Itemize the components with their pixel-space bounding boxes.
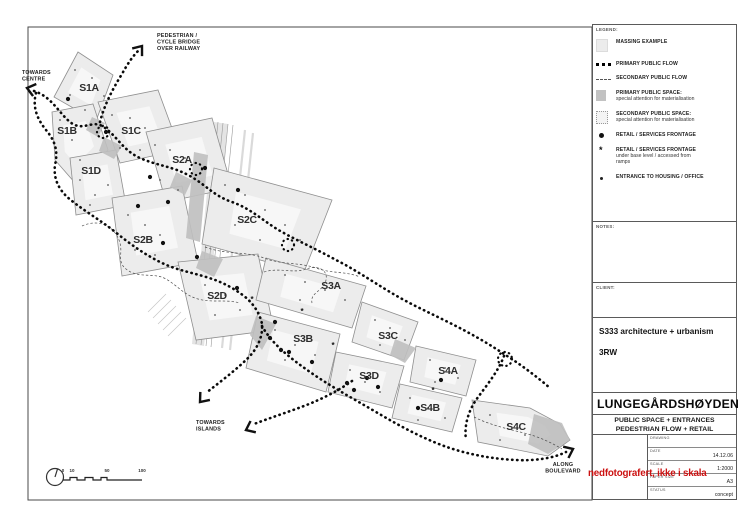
legend-item-label: SECONDARY PUBLIC FLOW	[616, 75, 687, 81]
field-label: SCALE	[650, 462, 663, 466]
entrance-dot	[499, 439, 501, 441]
secondary-flow-line-icon	[596, 75, 611, 81]
legend-item-label: PRIMARY PUBLIC FLOW	[616, 61, 678, 67]
flow-arrowhead	[244, 422, 255, 435]
slope-hatch-line	[148, 294, 166, 312]
flow-arrowhead	[196, 393, 209, 405]
entrance-dot	[434, 381, 436, 383]
primary-flow-line-icon	[596, 61, 611, 67]
scale-bar	[63, 478, 142, 481]
retail-frontage-dot	[203, 166, 207, 170]
entrance-dot	[91, 77, 93, 79]
entrance-dot	[314, 354, 316, 356]
entrance-dot	[169, 149, 171, 151]
retail-frontage-dot	[195, 255, 199, 259]
legend-item-label: MASSING EXAMPLE	[616, 39, 667, 45]
entrance-dot	[154, 254, 156, 256]
entrance-dot	[204, 284, 206, 286]
legend-item-label: RETAIL / SERVICES FRONTAGE	[616, 132, 696, 138]
titleblock-fields: DRAWINGDATE14.12.06SCALE1:2000PAPER SIZE…	[592, 434, 737, 500]
entrance-dot	[284, 359, 286, 361]
retail-frontage-dot	[136, 204, 140, 208]
scale-bar-label: 10	[69, 468, 75, 473]
parcel-label-s2a: S2A	[172, 154, 192, 166]
parcel-label-s3c: S3C	[378, 330, 398, 342]
entrance-dot	[409, 397, 411, 399]
entrance-dot	[154, 144, 156, 146]
retail-frontage-dot	[104, 130, 108, 134]
entrance-dot	[79, 179, 81, 181]
entrance-dot	[389, 327, 391, 329]
entrance-dot	[144, 127, 146, 129]
scale-bar-label: 100	[138, 468, 146, 473]
titleblock-field-rows: DRAWINGDATE14.12.06SCALE1:2000PAPER SIZE…	[648, 435, 736, 499]
entrance-dot	[304, 281, 306, 283]
entrance-dot	[159, 234, 161, 236]
entrance-dot	[107, 184, 109, 186]
entrance-dot	[234, 224, 236, 226]
entrance-dot	[429, 359, 431, 361]
retail-frontage-dot	[166, 200, 170, 204]
legend-item: PRIMARY PUBLIC FLOW	[596, 61, 733, 67]
subtitle-line-1: PUBLIC SPACE + ENTRANCES	[593, 417, 736, 426]
field-value: concept	[715, 492, 733, 498]
entrance-dot	[127, 214, 129, 216]
entrance-dot	[89, 204, 91, 206]
slope-hatch-line	[158, 306, 176, 324]
retail-frontage-dot	[66, 97, 70, 101]
entrance-dot	[214, 314, 216, 316]
entrance-dot	[111, 114, 113, 116]
firm-name-s333: S333 architecture + urbanism	[599, 327, 730, 336]
client-box: CLIENT:	[592, 282, 737, 318]
entrance-dot	[94, 194, 96, 196]
entrance-dot	[417, 419, 419, 421]
flow-arrowhead	[564, 444, 575, 457]
parcel-label-s4a: S4A	[438, 365, 458, 377]
entrance-dot	[349, 369, 351, 371]
parcel-label-s1b: S1B	[57, 125, 77, 137]
titleblock-field-date: DATE14.12.06	[648, 448, 736, 461]
parcel-label-s1d: S1D	[81, 165, 101, 177]
retail-frontage-dot	[236, 188, 240, 192]
legend-item: SECONDARY PUBLIC FLOW	[596, 75, 733, 81]
field-label: DRAWING	[650, 436, 670, 440]
slope-hatch-line	[153, 300, 171, 318]
entrance-dot	[144, 224, 146, 226]
entrance-dot	[103, 95, 105, 97]
legend-item-label: ENTRANCE TO HOUSING / OFFICE	[616, 174, 704, 180]
entrance-dot	[284, 274, 286, 276]
entrance-dot	[129, 117, 131, 119]
massing-square-icon	[596, 39, 611, 52]
towards-centre-label: TOWARDSCENTRE	[22, 70, 51, 83]
retail-frontage-dot	[310, 360, 314, 364]
entrance-dot	[374, 319, 376, 321]
entrance-dot	[119, 147, 121, 149]
legend-item: ENTRANCE TO HOUSING / OFFICE	[596, 174, 733, 180]
entrance-dot	[69, 94, 71, 96]
retail-frontage-dot	[161, 241, 165, 245]
retail-frontage-dot	[345, 381, 349, 385]
entrance-dot	[274, 329, 276, 331]
entrance-dot	[524, 434, 526, 436]
parcel-label-s3d: S3D	[359, 370, 379, 382]
legend-item: RETAIL / SERVICES FRONTAGE	[596, 132, 733, 138]
secondary-space-square-icon	[596, 111, 611, 124]
retail-frontage-dot	[287, 350, 291, 354]
entrance-dot	[259, 239, 261, 241]
entrance-dot	[177, 189, 179, 191]
slope-hatch-line	[168, 318, 186, 336]
retail-dot-icon	[596, 132, 611, 138]
scale-bar-label: 0	[62, 468, 65, 473]
entrance-dot	[379, 344, 381, 346]
legend-item: *RETAIL / SERVICES FRONTAGEunder base le…	[596, 147, 733, 166]
retail-asterisk-icon: *	[596, 147, 611, 153]
project-title: LUNGEGÅRDSHØYDEN	[593, 397, 739, 411]
subtitle-line-2: PEDESTRIAN FLOW + RETAIL	[593, 426, 736, 435]
legend-heading: LEGEND:	[593, 25, 736, 32]
flow-arrowhead	[26, 83, 36, 95]
entrance-dot	[457, 377, 459, 379]
notes-box: NOTES:	[592, 221, 737, 283]
entrance-dot	[134, 249, 136, 251]
entrance-dot	[379, 391, 381, 393]
project-title-box: LUNGEGÅRDSHØYDEN	[592, 392, 737, 415]
flow-arrowhead	[133, 43, 146, 55]
legend-item-label: PRIMARY PUBLIC SPACE:special attention f…	[616, 90, 694, 102]
legend-item-label: SECONDARY PUBLIC SPACE:special attention…	[616, 111, 694, 123]
scale-bar-label: 50	[104, 468, 110, 473]
legend-item: SECONDARY PUBLIC SPACE:special attention…	[596, 111, 733, 124]
entrance-dot	[239, 309, 241, 311]
retail-frontage-dot	[273, 320, 277, 324]
retail-frontage-dot	[439, 378, 443, 382]
north-needle	[55, 469, 58, 477]
drawing-subtitle-box: PUBLIC SPACE + ENTRANCES PEDESTRIAN FLOW…	[592, 414, 737, 435]
field-label: DATE	[650, 449, 661, 453]
parcel-label-s2c: S2C	[237, 214, 257, 226]
primary-space-square-icon	[596, 90, 611, 101]
entrance-dot	[224, 184, 226, 186]
entrance-dot-icon	[596, 174, 611, 180]
entrance-dot	[264, 209, 266, 211]
retail-frontage-dot	[279, 348, 283, 352]
firm-name-3rw: 3RW	[599, 348, 730, 357]
entrance-dot	[159, 179, 161, 181]
retail-frontage-dot	[376, 385, 380, 389]
retail-frontage-dot	[352, 388, 356, 392]
parcel-label-s3a: S3A	[321, 280, 341, 292]
entrance-dot	[59, 119, 61, 121]
entrance-dot	[79, 159, 81, 161]
entrance-dot	[299, 239, 301, 241]
parcel-label-s4b: S4B	[420, 402, 440, 414]
entrance-dot	[489, 414, 491, 416]
entrance-dot	[139, 149, 141, 151]
entrance-dot	[84, 109, 86, 111]
primary-public-space-patch	[390, 339, 416, 363]
parcel-label-s2d: S2D	[207, 290, 227, 302]
title-block-sidebar: LEGEND: MASSING EXAMPLEPRIMARY PUBLIC FL…	[592, 25, 737, 500]
titleblock-field-status: STATUSconcept	[648, 487, 736, 499]
firm-box: S333 architecture + urbanism 3RW	[592, 317, 737, 393]
slope-hatch-line	[163, 312, 181, 330]
notes-heading: NOTES:	[593, 222, 736, 229]
field-value: A3	[727, 479, 733, 485]
parcel-label-s1c: S1C	[121, 125, 141, 137]
retail-frontage-dot	[268, 336, 272, 340]
parcel-label-s3b: S3B	[293, 333, 313, 345]
not-to-scale-stamp: nedfotografert, ikke i skala	[588, 468, 707, 479]
field-value: 14.12.06	[713, 453, 733, 459]
entrance-dot	[74, 69, 76, 71]
titleblock-empty-column	[593, 435, 648, 499]
field-value: 1:2000	[717, 466, 733, 472]
retail-frontage-dot	[148, 175, 152, 179]
entrance-dot	[404, 339, 406, 341]
entrance-dot	[71, 139, 73, 141]
entrance-dot	[284, 224, 286, 226]
client-heading: CLIENT:	[593, 283, 736, 290]
legend-box: LEGEND: MASSING EXAMPLEPRIMARY PUBLIC FL…	[592, 24, 737, 222]
parcel-label-s1a: S1A	[79, 82, 99, 94]
drawing-sheet: ****S1AS1BS1CS1DS2AS2BS2CS2DS3AS3BS3CS3D…	[0, 0, 750, 527]
along-boulevard-label: ALONGBOULEVARD	[545, 462, 581, 475]
retail-frontage-dot	[235, 286, 239, 290]
bridge-label: PEDESTRIAN /CYCLE BRIDGEOVER RAILWAY	[157, 33, 200, 52]
towards-islands-label: TOWARDSISLANDS	[196, 420, 225, 433]
legend-item: MASSING EXAMPLE	[596, 39, 733, 52]
field-label: STATUS	[650, 488, 666, 492]
entrance-dot	[344, 299, 346, 301]
parcel-label-s2b: S2B	[133, 234, 153, 246]
entrance-dot	[444, 417, 446, 419]
entrance-dot	[299, 299, 301, 301]
titleblock-field-drawing: DRAWING	[648, 435, 736, 448]
parcel-label-s4c: S4C	[506, 421, 526, 433]
entrance-dot	[244, 194, 246, 196]
legend-item-label: RETAIL / SERVICES FRONTAGEunder base lev…	[616, 147, 696, 166]
legend-item: PRIMARY PUBLIC SPACE:special attention f…	[596, 90, 733, 102]
legend-items: MASSING EXAMPLEPRIMARY PUBLIC FLOWSECOND…	[593, 32, 736, 180]
